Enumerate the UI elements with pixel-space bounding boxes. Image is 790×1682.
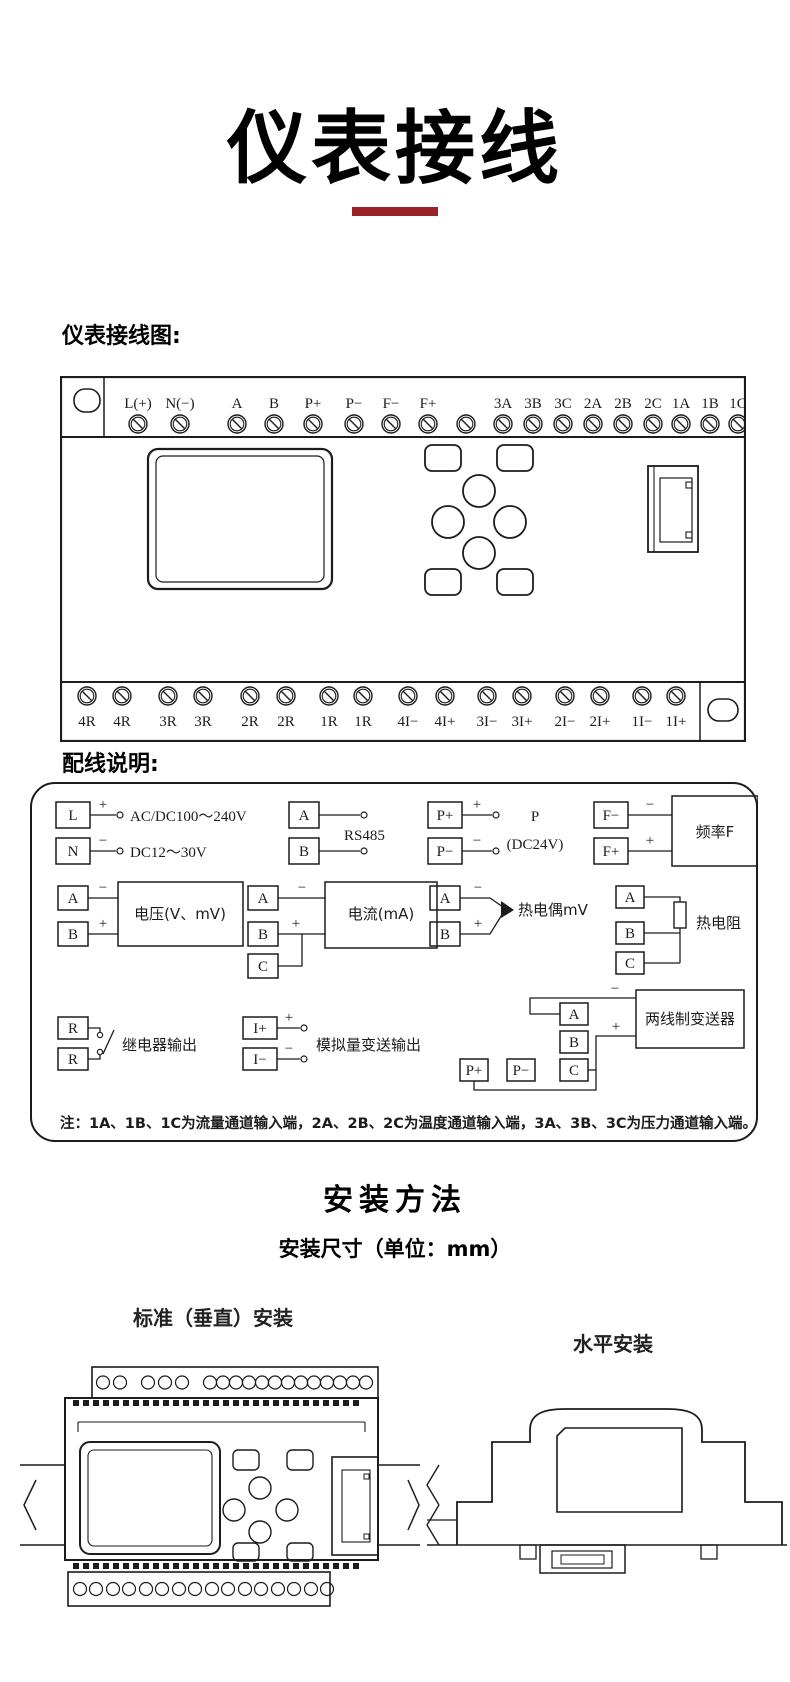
terminal-label: 2A	[584, 396, 603, 412]
terminal-box-label: B	[569, 1035, 579, 1051]
vertical-mount-label: 标准（垂直）安装	[133, 1302, 293, 1331]
horizontal-mount-figure	[425, 1380, 790, 1590]
rail-cut-arrow-left	[427, 1465, 439, 1505]
rail-cut-arrow-left	[24, 1480, 36, 1530]
polarity-sign: +	[99, 916, 107, 932]
relay-label: 继电器输出	[122, 1036, 197, 1054]
terminal-label: 1A	[672, 396, 691, 412]
polarity-sign: −	[473, 833, 481, 849]
terminal-box-label: P+	[466, 1063, 483, 1079]
polarity-sign: −	[99, 833, 107, 849]
device-profile	[457, 1409, 782, 1545]
polarity-sign: −	[474, 880, 482, 896]
terminal-label: A	[232, 396, 243, 412]
terminal-label: 1I+	[666, 714, 687, 730]
rtd-resistor	[674, 902, 686, 928]
terminal-label: 4I−	[398, 714, 419, 730]
terminal-box-label: A	[68, 891, 79, 907]
rail-cut-arrow-left-lower	[427, 1505, 439, 1545]
terminal-label: 3I−	[477, 714, 498, 730]
terminal-box-label: R	[68, 1052, 78, 1068]
rail-clip	[540, 1545, 625, 1573]
terminal-box-label: A	[569, 1007, 580, 1023]
terminal-label: 4R	[78, 714, 96, 730]
polarity-sign: +	[99, 797, 107, 813]
polarity-sign: +	[646, 833, 654, 849]
terminal-box-label: B	[299, 844, 309, 860]
terminal-box-label: C	[569, 1063, 579, 1079]
mount-foot-right	[701, 1545, 717, 1559]
polarity-sign: +	[473, 797, 481, 813]
terminal-box-label: P−	[437, 844, 454, 860]
terminal-label: 2B	[614, 396, 632, 412]
terminal-box-label: F+	[603, 844, 620, 860]
rail-cut-arrow-right	[408, 1480, 419, 1530]
terminal-box-label: A	[625, 890, 636, 906]
terminal-box-label: F−	[603, 808, 620, 824]
terminal-label: 1R	[320, 714, 338, 730]
power-range-line2: DC12～30V	[130, 845, 207, 861]
terminal-label: 3B	[524, 396, 542, 412]
terminal-label: F−	[383, 396, 400, 412]
terminal-box-label: A	[440, 891, 451, 907]
power-range-line1: AC/DC100～240V	[130, 809, 247, 825]
polarity-sign: −	[611, 981, 619, 997]
terminal-box-label: I−	[253, 1052, 266, 1068]
terminal-label: L(+)	[124, 396, 152, 412]
terminal-label: P−	[346, 396, 363, 412]
polarity-sign: +	[474, 916, 482, 932]
terminal-label: 4I+	[435, 714, 456, 730]
terminal-label: 1B	[701, 396, 719, 412]
polarity-sign: −	[285, 1041, 293, 1057]
frequency-device-label: 频率F	[696, 823, 735, 841]
terminal-box-label: B	[258, 927, 268, 943]
current-device-label: 电流(mA)	[348, 905, 415, 923]
terminal-label: 3R	[159, 714, 177, 730]
mount-foot-left	[520, 1545, 536, 1559]
terminal-label: 4R	[113, 714, 131, 730]
terminal-box-label: I+	[253, 1021, 266, 1037]
terminal-box-label: N	[68, 844, 79, 860]
polarity-sign: +	[285, 1010, 293, 1026]
rtd-label: 热电阻	[696, 914, 741, 932]
terminal-label: 1R	[354, 714, 372, 730]
vertical-mount-figure	[20, 1358, 420, 1618]
rs485-label: RS485	[344, 828, 385, 844]
manual-page: 仪表接线 仪表接线图: L(+) N(−) A B P+ P− F− F+ 3A…	[0, 0, 790, 1682]
polarity-sign: +	[612, 1019, 620, 1035]
terminal-box-label: C	[625, 956, 635, 972]
polarity-sign: +	[292, 916, 300, 932]
title-accent-bar	[352, 207, 438, 216]
terminal-box-label: A	[299, 808, 310, 824]
terminal-box-label: C	[258, 959, 268, 975]
terminal-label: 3A	[494, 396, 513, 412]
installation-subheading: 安装尺寸（单位：mm）	[0, 1233, 790, 1263]
terminal-label: 3R	[194, 714, 212, 730]
terminal-label: F+	[420, 396, 437, 412]
terminal-label: 2I+	[590, 714, 611, 730]
installation-heading: 安装方法	[0, 1175, 790, 1219]
polarity-sign: −	[298, 880, 306, 896]
terminal-box-label: B	[440, 927, 450, 943]
terminal-label: 2C	[644, 396, 662, 412]
terminal-label: 2I−	[555, 714, 576, 730]
wiring-figure-label: 仪表接线图:	[62, 318, 181, 350]
terminal-label: 2R	[241, 714, 259, 730]
terminal-box-label: P−	[513, 1063, 530, 1079]
terminal-box-label: A	[258, 891, 269, 907]
terminal-label: 1I−	[632, 714, 653, 730]
channel-note: 注：1A、1B、1C为流量通道输入端，2A、2B、2C为温度通道输入端，3A、3…	[60, 1114, 757, 1132]
terminal-label: 2R	[277, 714, 295, 730]
polarity-sign: −	[646, 797, 654, 813]
dc24-label-line2: (DC24V)	[507, 837, 564, 853]
page-title: 仪表接线	[0, 84, 790, 200]
analog-output-label: 模拟量变送输出	[316, 1036, 421, 1054]
voltage-device-label: 电压(V、mV)	[134, 905, 226, 923]
terminal-box-label: P+	[437, 808, 454, 824]
horizontal-mount-label: 水平安装	[573, 1328, 653, 1357]
top-terminal-strip	[92, 1367, 378, 1398]
terminal-label: P+	[305, 396, 322, 412]
terminal-label: 3C	[554, 396, 572, 412]
terminal-box-label: B	[68, 927, 78, 943]
terminal-box-label: B	[625, 926, 635, 942]
terminal-box-label: L	[68, 808, 77, 824]
wiring-notes-figure: L + AC/DC100～240V N − DC12～30V A B RS485	[30, 782, 758, 1142]
terminal-label: N(−)	[165, 396, 194, 412]
wiring-notes-label: 配线说明:	[62, 746, 159, 778]
dc24-label-line1: P	[531, 809, 539, 825]
polarity-sign: −	[99, 880, 107, 896]
thermocouple-label: 热电偶mV	[518, 901, 589, 919]
terminal-label: 1C	[729, 396, 746, 412]
transmitter-device-label: 两线制变送器	[645, 1010, 735, 1028]
instrument-wiring-figure: L(+) N(−) A B P+ P− F− F+ 3A 3B 3C 2A 2B…	[60, 376, 746, 742]
terminal-label: 3I+	[512, 714, 533, 730]
terminal-box-label: R	[68, 1021, 78, 1037]
bottom-terminal-strip	[68, 1572, 330, 1606]
terminal-label: B	[269, 396, 279, 412]
